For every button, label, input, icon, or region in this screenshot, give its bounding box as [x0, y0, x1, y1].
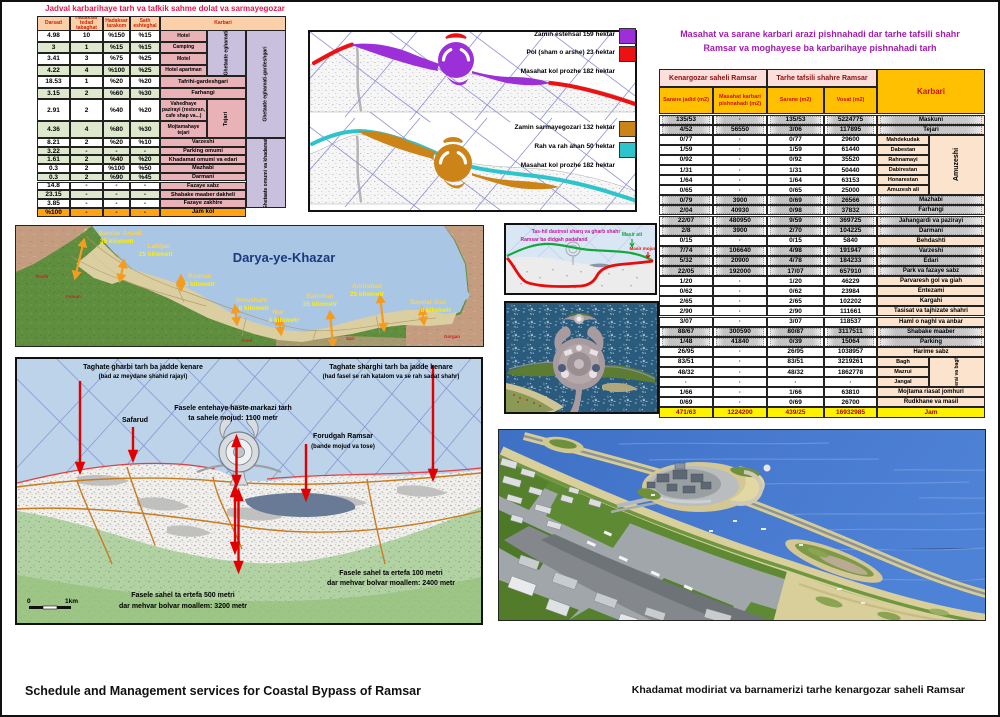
svg-text:Amol: Amol: [241, 338, 252, 343]
svg-text:Fasele sahel ta ertefa 500 met: Fasele sahel ta ertefa 500 metri: [131, 592, 235, 599]
svg-text:Fasele entehaye haste markazi: Fasele entehaye haste markazi tarh: [174, 405, 292, 412]
svg-text:Safarud: Safarud: [122, 417, 148, 424]
svg-text:(bad az meydane shahid rajayi): (bad az meydane shahid rajayi): [99, 374, 188, 380]
svg-text:35 kilometr: 35 kilometr: [303, 301, 338, 308]
svg-text:35 kilometr: 35 kilometr: [100, 238, 135, 245]
svg-text:Bandar Gaz: Bandar Gaz: [410, 299, 447, 306]
svg-text:Gorgan: Gorgan: [444, 334, 460, 339]
svg-text:Fuman: Fuman: [66, 294, 81, 299]
svg-text:Rasht: Rasht: [36, 274, 49, 279]
svg-text:25 kilometr: 25 kilometr: [139, 251, 174, 258]
svg-text:dar mehvar bolvar moallem: 320: dar mehvar bolvar moallem: 3200 metr: [119, 603, 247, 610]
svg-text:Masir ati: Masir ati: [622, 232, 643, 238]
svg-text:Ramsar ba didgah padafand: Ramsar ba didgah padafand: [521, 237, 588, 243]
svg-text:(bande mojud va tose): (bande mojud va tose): [311, 444, 375, 450]
svg-text:Nowshahr: Nowshahr: [236, 297, 268, 304]
svg-text:3 kilometr: 3 kilometr: [185, 281, 216, 288]
svg-text:Sari: Sari: [346, 336, 355, 341]
svg-text:8 kilometr: 8 kilometr: [421, 307, 452, 314]
svg-text:Nur: Nur: [272, 309, 284, 316]
svg-text:1km: 1km: [65, 598, 78, 605]
svg-text:(had fasel se rah katalom va s: (had fasel se rah katalom va se rah sada…: [323, 374, 460, 380]
svg-text:Bandar Anzali: Bandar Anzali: [98, 230, 141, 237]
svg-text:25 kilometr: 25 kilometr: [350, 291, 385, 298]
svg-text:Fasele sahel ta ertefa 100 met: Fasele sahel ta ertefa 100 metri: [339, 570, 443, 577]
svg-text:Babolsar: Babolsar: [306, 293, 334, 300]
svg-text:8 kilometr: 8 kilometr: [269, 317, 300, 324]
svg-text:8 kilometr: 8 kilometr: [239, 305, 270, 312]
svg-text:Masir mojud: Masir mojud: [629, 246, 655, 251]
svg-text:Forudgah Ramsar: Forudgah Ramsar: [313, 433, 373, 440]
svg-text:Lahijan: Lahijan: [148, 243, 171, 250]
svg-text:Taghate gharbi tarh ba jadde k: Taghate gharbi tarh ba jadde kenare: [83, 364, 203, 371]
svg-text:0: 0: [27, 598, 31, 605]
svg-text:Tas-hil dastresi sharq va ghar: Tas-hil dastresi sharq va gharb shahr: [532, 229, 621, 235]
svg-text:ta sahele mojud: 1100 metr: ta sahele mojud: 1100 metr: [188, 415, 278, 422]
svg-text:dar mehvar bolvar moallem: 240: dar mehvar bolvar moallem: 2400 metr: [327, 580, 455, 587]
svg-text:Taghate sharghi tarh ba jadde: Taghate sharghi tarh ba jadde kenare: [329, 364, 453, 371]
svg-text:Darya-ye-Khazar: Darya-ye-Khazar: [233, 250, 336, 265]
svg-text:Amirabad: Amirabad: [352, 283, 382, 290]
svg-text:Ramsar: Ramsar: [188, 273, 212, 280]
